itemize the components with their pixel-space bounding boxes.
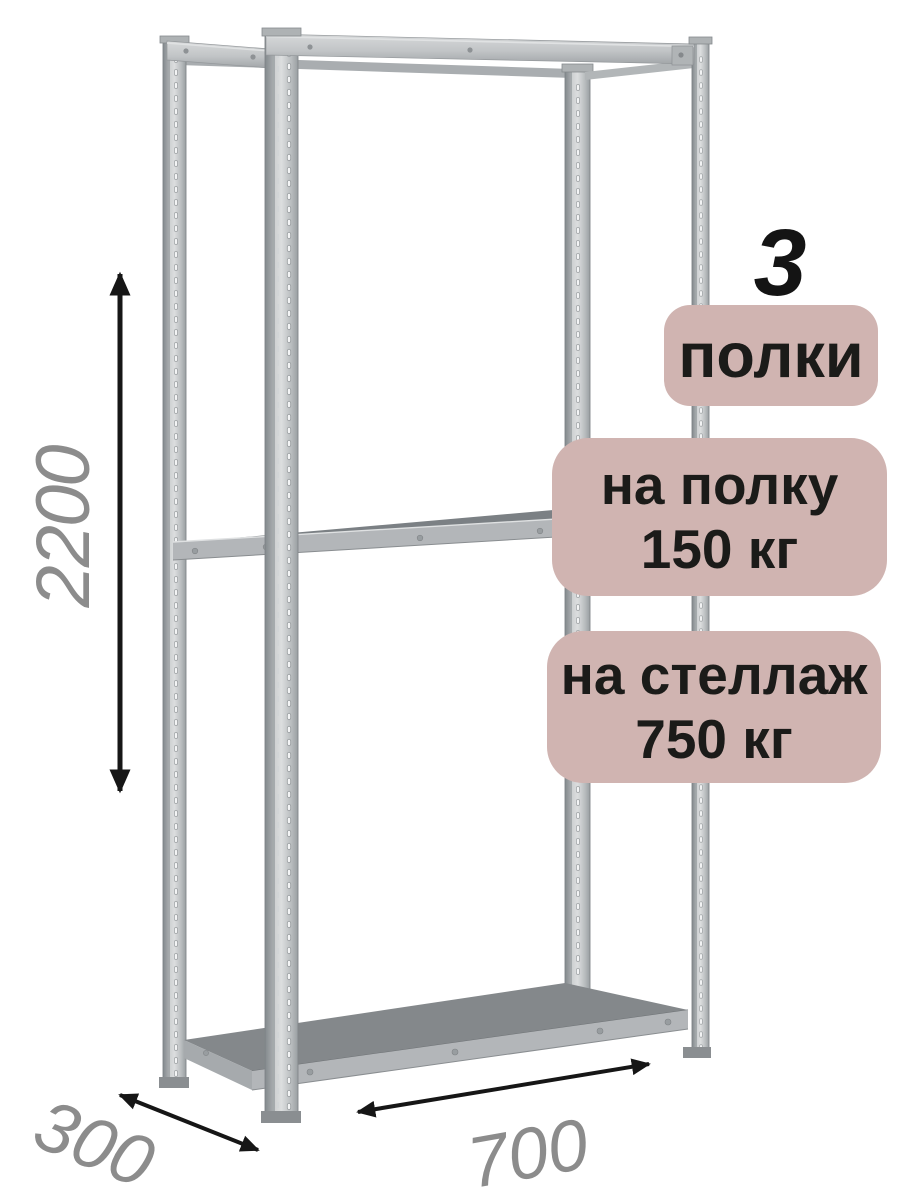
bolt [307,1069,313,1075]
post-foot [683,1047,711,1058]
per-shelf-load-badge: на полку 150 кг [552,438,887,596]
upright-post-front-left [261,30,301,1123]
bolt [467,47,472,52]
bolt [452,1049,458,1055]
post-top-cap [262,28,301,36]
post-foot [261,1111,301,1123]
bolt [183,48,188,53]
rack-figure [0,0,900,1200]
post-top-cap [689,37,712,44]
height-dimension-label: 2200 [19,377,109,677]
per-rack-load-label: на стеллаж [547,643,881,707]
bolt [537,528,543,534]
bottom-shelf [184,983,688,1090]
bolt [417,535,423,541]
upright-post-back-left [159,36,189,1088]
per-rack-load-badge: на стеллаж 750 кг [547,631,881,783]
bolt [307,44,312,49]
post-top-cap [562,64,593,72]
bolt [678,52,683,57]
bolt [203,1050,208,1055]
per-shelf-load-label: на полку [552,453,887,517]
post-foot [159,1077,189,1088]
bolt [597,1028,603,1034]
top-beam-front [266,34,694,65]
bolt [250,54,255,59]
shelf-count-number: 3 [700,214,860,312]
bolt [665,1019,671,1025]
bolt [192,548,198,554]
per-shelf-load-value: 150 кг [552,517,887,581]
shelf-count-badge: полки [664,305,878,406]
product-image: 2200 300 700 3 полки на полку 150 кг на … [0,0,900,1200]
shelf-count-label: полки [664,320,878,392]
per-rack-load-value: 750 кг [547,707,881,771]
